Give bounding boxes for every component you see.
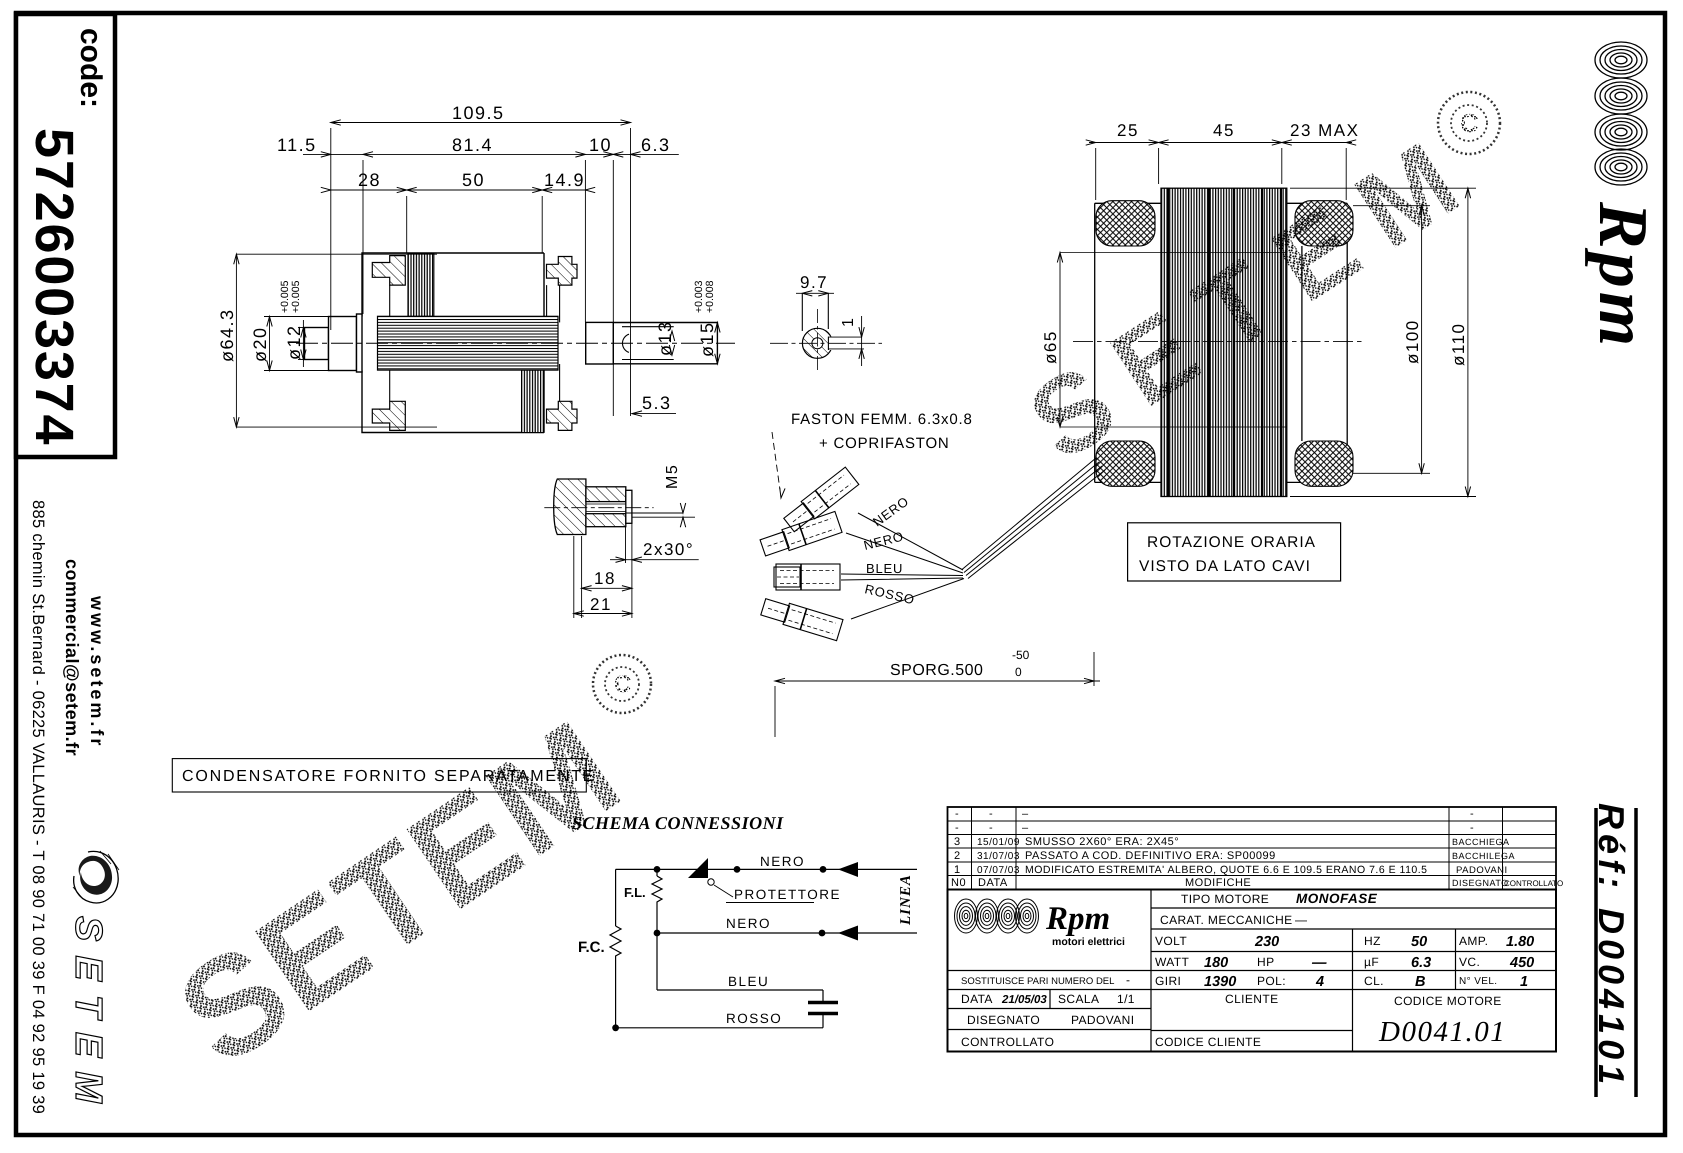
svg-text:GIRI: GIRI bbox=[1155, 974, 1181, 988]
svg-text:50: 50 bbox=[462, 170, 485, 190]
svg-text:CARAT. MECCANICHE: CARAT. MECCANICHE bbox=[1160, 913, 1293, 927]
svg-text:0: 0 bbox=[1015, 665, 1022, 679]
svg-text:-: - bbox=[955, 822, 959, 834]
svg-text:14.9: 14.9 bbox=[544, 170, 585, 190]
svg-text:BLEU: BLEU bbox=[866, 561, 903, 576]
svg-text:1390: 1390 bbox=[1204, 974, 1236, 990]
svg-text:B: B bbox=[1415, 974, 1425, 990]
svg-text:N° VEL.: N° VEL. bbox=[1459, 976, 1497, 987]
svg-text:-: - bbox=[1470, 808, 1474, 820]
svg-text:-: - bbox=[989, 808, 993, 820]
svg-text:BLEU: BLEU bbox=[728, 974, 769, 989]
svg-text:81.4: 81.4 bbox=[452, 135, 493, 155]
svg-text:BACCHILEGA: BACCHILEGA bbox=[1452, 851, 1515, 861]
svg-text:HP: HP bbox=[1257, 955, 1274, 969]
svg-text:21: 21 bbox=[590, 595, 612, 614]
svg-text:07/07/03: 07/07/03 bbox=[977, 865, 1020, 876]
svg-text:M5: M5 bbox=[664, 464, 681, 489]
svg-text:NERO: NERO bbox=[760, 854, 805, 869]
svg-text:18: 18 bbox=[594, 569, 616, 588]
svg-text:F.C.: F.C. bbox=[578, 939, 605, 956]
svg-text:-: - bbox=[955, 808, 959, 820]
svg-text:28: 28 bbox=[358, 170, 381, 190]
svg-text:-: - bbox=[1126, 973, 1130, 987]
svg-text:25: 25 bbox=[1117, 121, 1139, 140]
svg-text:1: 1 bbox=[840, 317, 857, 327]
svg-text:-: - bbox=[989, 822, 993, 834]
svg-text:+0.005: +0.005 bbox=[290, 280, 302, 313]
svg-text:885 chemin St.Bernard - 0622: 885 chemin St.Bernard - 06225 VALLAURIS … bbox=[29, 500, 47, 1114]
svg-text:–: – bbox=[1022, 822, 1029, 834]
svg-text:-: - bbox=[1470, 822, 1474, 834]
svg-text:4: 4 bbox=[1315, 974, 1324, 990]
svg-text:15/01/09: 15/01/09 bbox=[977, 837, 1020, 848]
svg-text:10: 10 bbox=[589, 135, 612, 155]
svg-text:31/07/03: 31/07/03 bbox=[977, 851, 1020, 862]
svg-text:109.5: 109.5 bbox=[452, 103, 505, 123]
svg-text:CONTROLLATO: CONTROLLATO bbox=[1504, 879, 1563, 888]
svg-text:23 MAX: 23 MAX bbox=[1290, 121, 1359, 140]
svg-text:SCALA: SCALA bbox=[1058, 992, 1099, 1006]
svg-text:N0: N0 bbox=[951, 877, 966, 889]
svg-text:ø12: ø12 bbox=[284, 324, 304, 360]
svg-text:ø110: ø110 bbox=[1449, 323, 1468, 367]
svg-text:CLIENTE: CLIENTE bbox=[1225, 992, 1278, 1006]
svg-text:—: — bbox=[1295, 913, 1307, 927]
svg-text:ROSSO: ROSSO bbox=[726, 1011, 782, 1026]
svg-text:SPORG.500: SPORG.500 bbox=[890, 662, 983, 679]
svg-text:ø20: ø20 bbox=[250, 326, 270, 362]
svg-text:C: C bbox=[1460, 108, 1479, 138]
svg-text:ROTAZIONE ORARIA: ROTAZIONE ORARIA bbox=[1147, 534, 1316, 551]
svg-text:9.7: 9.7 bbox=[800, 273, 828, 292]
svg-text:450: 450 bbox=[1509, 955, 1534, 971]
svg-text:–: – bbox=[1022, 808, 1029, 820]
svg-text:MODIFICHE: MODIFICHE bbox=[1185, 877, 1251, 889]
svg-text:DISEGNATO: DISEGNATO bbox=[967, 1013, 1040, 1027]
svg-text:5726003374: 5726003374 bbox=[24, 128, 84, 446]
svg-text:5.3: 5.3 bbox=[642, 393, 672, 413]
svg-text:Réf: D004101: Réf: D004101 bbox=[1591, 803, 1632, 1089]
svg-text:Rpm: Rpm bbox=[1045, 901, 1110, 937]
svg-text:SETEM: SETEM bbox=[67, 916, 109, 1117]
svg-text:2: 2 bbox=[954, 850, 961, 862]
svg-text:C: C bbox=[614, 671, 631, 698]
svg-text:+0.008: +0.008 bbox=[704, 280, 716, 313]
svg-text:DATA: DATA bbox=[961, 992, 993, 1006]
svg-text:CODICE CLIENTE: CODICE CLIENTE bbox=[1155, 1035, 1261, 1049]
svg-text:SOSTITUISCE PARI NUMERO DEL: SOSTITUISCE PARI NUMERO DEL bbox=[961, 976, 1114, 987]
svg-text:AMP.: AMP. bbox=[1459, 934, 1488, 948]
svg-text:6.3: 6.3 bbox=[641, 135, 671, 155]
svg-text:code:: code: bbox=[74, 28, 107, 108]
svg-text:TIPO MOTORE: TIPO MOTORE bbox=[1181, 892, 1269, 906]
svg-text:230: 230 bbox=[1254, 934, 1279, 950]
svg-text:PASSATO A COD. DEFINITIVO ERA:: PASSATO A COD. DEFINITIVO ERA: SP00099 bbox=[1025, 850, 1276, 862]
svg-text:POL:: POL: bbox=[1257, 974, 1286, 988]
svg-text:1/1: 1/1 bbox=[1117, 992, 1135, 1006]
svg-text:µF: µF bbox=[1364, 955, 1379, 969]
svg-text:CL.: CL. bbox=[1364, 974, 1384, 988]
svg-text:1: 1 bbox=[954, 864, 961, 876]
svg-text:BACCHIEGA: BACCHIEGA bbox=[1452, 837, 1510, 847]
svg-text:1: 1 bbox=[1520, 974, 1528, 990]
svg-text:DATA: DATA bbox=[978, 877, 1008, 889]
svg-text:-50: -50 bbox=[1012, 648, 1030, 662]
svg-text:WATT: WATT bbox=[1155, 955, 1190, 969]
svg-text:VOLT: VOLT bbox=[1155, 934, 1187, 948]
svg-text:LINEA: LINEA bbox=[898, 874, 914, 926]
svg-text:ø13: ø13 bbox=[655, 320, 675, 356]
svg-text:NERO: NERO bbox=[726, 916, 771, 931]
svg-text:PADOVANI: PADOVANI bbox=[1456, 865, 1508, 876]
svg-text:1.80: 1.80 bbox=[1506, 934, 1534, 950]
svg-text:45: 45 bbox=[1213, 121, 1235, 140]
svg-text:MONOFASE: MONOFASE bbox=[1296, 891, 1378, 906]
svg-text:motori elettrici: motori elettrici bbox=[1052, 936, 1125, 948]
svg-text:Rpm: Rpm bbox=[1584, 201, 1661, 350]
svg-text:www.setem.fr: www.setem.fr bbox=[87, 595, 107, 748]
svg-text:PADOVANI: PADOVANI bbox=[1071, 1013, 1134, 1027]
svg-text:VISTO DA LATO CAVI: VISTO DA LATO CAVI bbox=[1139, 558, 1311, 575]
svg-text:ø100: ø100 bbox=[1403, 319, 1422, 364]
svg-text:ø15: ø15 bbox=[697, 321, 717, 357]
svg-text:F.L.: F.L. bbox=[624, 885, 646, 900]
svg-text:FASTON FEMM. 6.3x0.8: FASTON FEMM. 6.3x0.8 bbox=[791, 411, 973, 428]
svg-text:2x30°: 2x30° bbox=[643, 540, 694, 559]
svg-text:MODIFICATO ESTREMITA' ALBERO,: MODIFICATO ESTREMITA' ALBERO, QUOTE 6.6 … bbox=[1025, 864, 1428, 876]
svg-text:CODICE MOTORE: CODICE MOTORE bbox=[1394, 994, 1502, 1008]
svg-text:ø64.3: ø64.3 bbox=[217, 308, 237, 362]
svg-text:VC.: VC. bbox=[1459, 955, 1480, 969]
svg-text:PROTETTORE: PROTETTORE bbox=[734, 887, 841, 902]
svg-text:+ COPRIFASTON: + COPRIFASTON bbox=[819, 435, 950, 452]
svg-text:6.3: 6.3 bbox=[1411, 955, 1431, 971]
svg-text:SMUSSO 2X60° ERA: 2X45°: SMUSSO 2X60° ERA: 2X45° bbox=[1025, 836, 1179, 848]
svg-text:HZ: HZ bbox=[1364, 934, 1381, 948]
svg-text:3: 3 bbox=[954, 836, 961, 848]
svg-text:180: 180 bbox=[1204, 955, 1228, 971]
svg-text:—: — bbox=[1311, 955, 1327, 971]
svg-text:commercial@setem.fr: commercial@setem.fr bbox=[62, 559, 82, 756]
svg-text:11.5: 11.5 bbox=[277, 135, 317, 155]
svg-text:50: 50 bbox=[1411, 934, 1427, 950]
svg-text:CONTROLLATO: CONTROLLATO bbox=[961, 1035, 1054, 1049]
svg-text:DISEGNATO: DISEGNATO bbox=[1452, 878, 1509, 888]
svg-text:21/05/03: 21/05/03 bbox=[1001, 994, 1047, 1006]
svg-text:D0041.01: D0041.01 bbox=[1378, 1016, 1506, 1048]
